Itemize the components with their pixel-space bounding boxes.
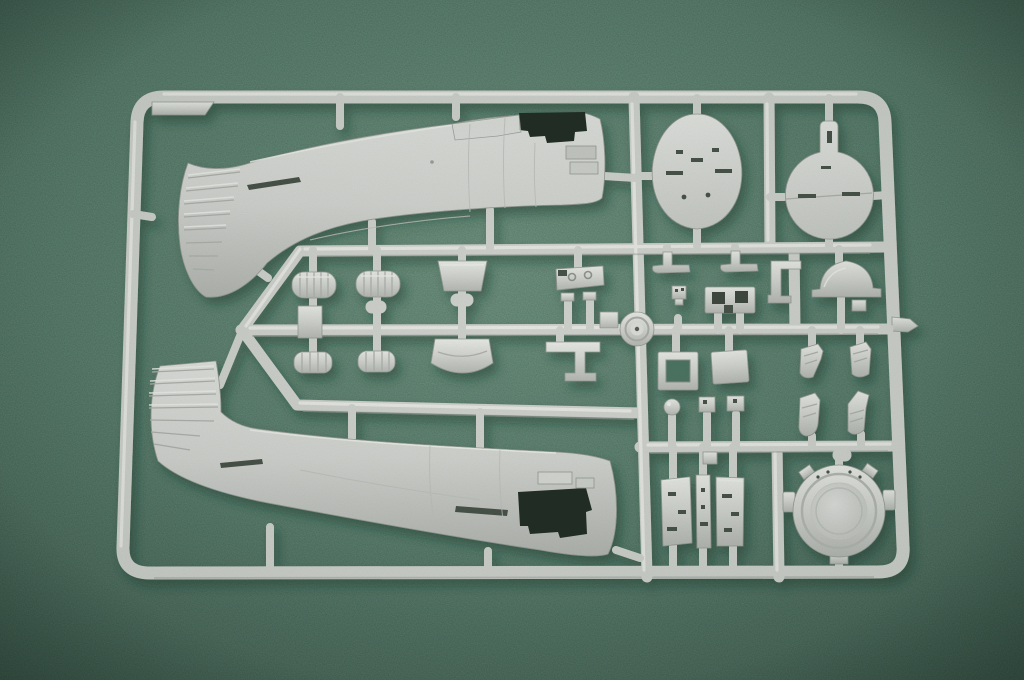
- photo-of-model-sprue: [0, 0, 1024, 680]
- photo-grain: [0, 0, 1024, 680]
- sprue-photo: [0, 0, 1024, 680]
